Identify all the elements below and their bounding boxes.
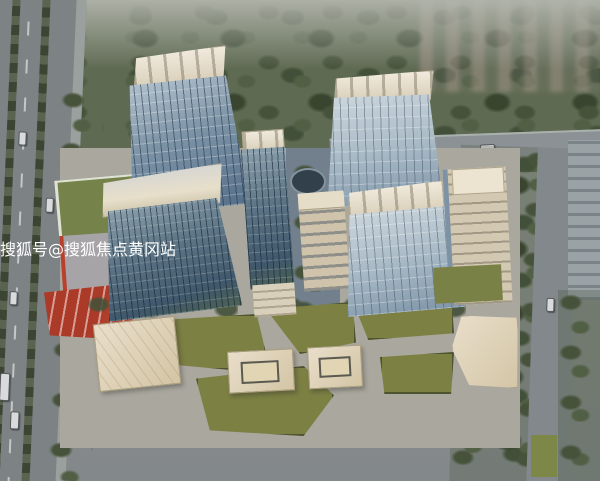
skylight xyxy=(241,360,280,384)
bus xyxy=(0,373,10,401)
watermark-text: 搜狐号@搜狐焦点黄冈站 xyxy=(0,236,176,260)
east-trees xyxy=(558,290,600,481)
car xyxy=(10,411,20,429)
green-roof xyxy=(433,264,503,304)
car xyxy=(45,198,54,213)
tower-4-podium xyxy=(252,282,296,317)
car xyxy=(9,291,18,305)
atmospheric-haze xyxy=(0,0,600,70)
round-pond xyxy=(290,168,326,195)
green-roof xyxy=(380,352,454,394)
circular-garden xyxy=(279,326,325,354)
neighboring-building xyxy=(568,140,600,300)
skylight xyxy=(318,356,351,378)
aerial-rendering: 12345678 搜狐号@搜狐焦点黄冈站 xyxy=(0,0,600,481)
podium-canopy xyxy=(227,348,295,393)
building-8-roof xyxy=(451,167,504,196)
car xyxy=(546,298,554,312)
green-strip xyxy=(531,435,557,477)
car xyxy=(18,131,27,145)
podium-canopy xyxy=(93,316,182,392)
tower-4-facade xyxy=(241,147,295,290)
